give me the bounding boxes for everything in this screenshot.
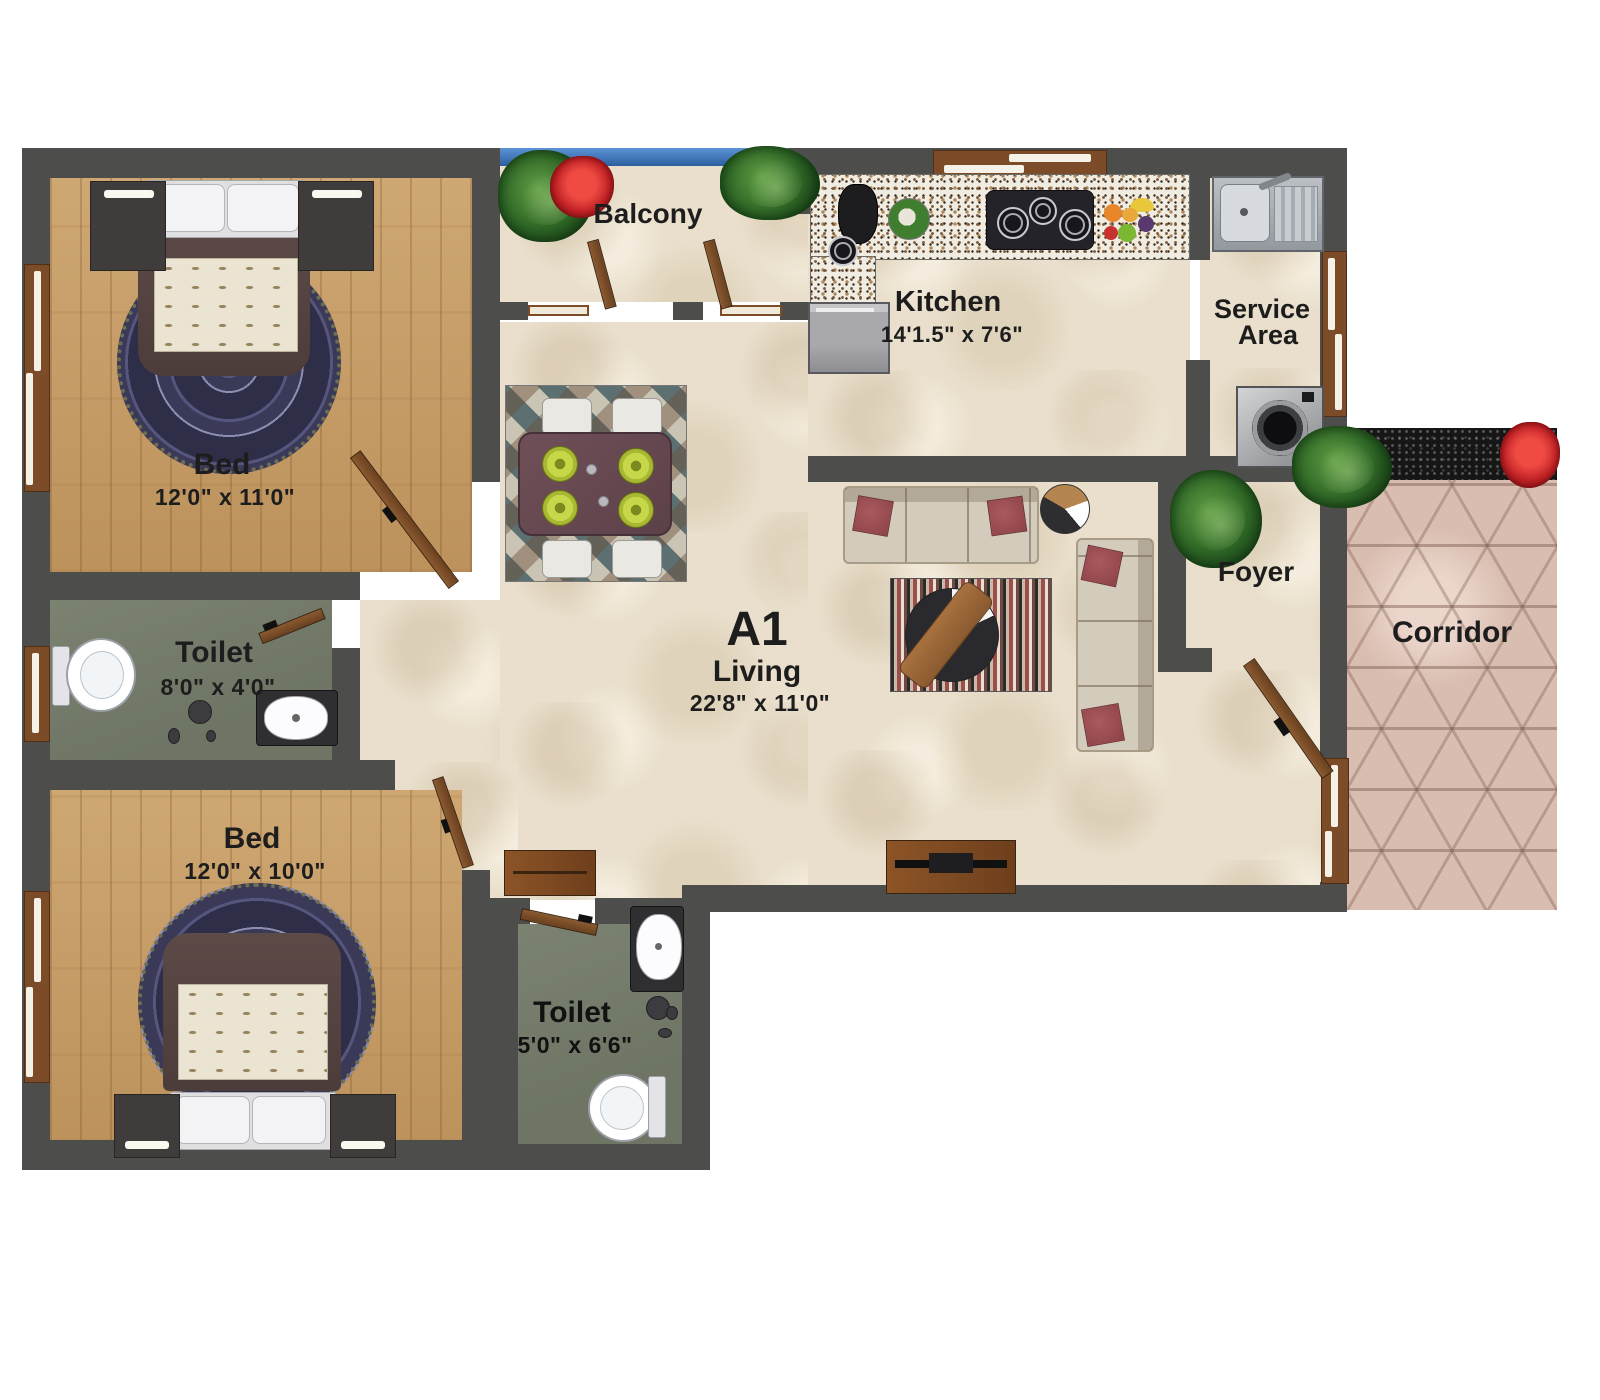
bedroom-bottom-label: Bed (224, 822, 281, 856)
service-area-label-line2: Area (1238, 320, 1298, 351)
bed-top-pillow-right (227, 184, 299, 232)
sofa-backrest (1138, 540, 1152, 750)
nightstand (298, 181, 374, 271)
throw-pillow (852, 495, 894, 537)
dining-chair (612, 398, 662, 436)
dining-table (518, 432, 672, 536)
wall-foyer-corridor (1320, 490, 1347, 760)
gas-stove (986, 190, 1094, 250)
window-pane (32, 653, 39, 733)
vegetable-plate (888, 198, 930, 240)
bed-bottom-pillow-right (252, 1096, 326, 1144)
wall-foyer-foot (1158, 648, 1212, 672)
window-pane (26, 987, 33, 1077)
wall-bed1-bottom (22, 572, 360, 600)
balcony-door-sill-left (528, 305, 589, 316)
stove-burner (1059, 209, 1091, 241)
bedroom-bottom-dims: 12'0" x 10'0" (184, 858, 326, 885)
bedroom-top-dims: 12'0" x 11'0" (155, 484, 295, 511)
fruit-apple-green (1118, 224, 1136, 242)
bed-bottom-pillow-left (176, 1096, 250, 1144)
window-pane (34, 271, 41, 371)
foyer-label: Foyer (1218, 556, 1294, 588)
living-label: Living (713, 655, 801, 689)
wall-balcony-stub-left (498, 302, 528, 320)
window-pane (944, 165, 1024, 173)
wall-bed2-right (462, 870, 490, 1170)
bath-accessory (666, 1006, 678, 1020)
plate (618, 492, 654, 528)
washer-panel (1302, 392, 1314, 402)
toilet-bottom-tank (648, 1076, 666, 1138)
plant-corridor (1292, 426, 1392, 508)
dining-chair (542, 540, 592, 578)
nightstand (330, 1094, 396, 1158)
fruit-orange (1104, 204, 1122, 222)
lamp (125, 1141, 169, 1149)
toilet-top-basin (264, 696, 328, 740)
balcony-label: Balcony (594, 198, 703, 230)
fruit-grapes (1138, 216, 1154, 232)
wall-bed1-top (22, 148, 500, 178)
plant-foyer (1170, 470, 1262, 568)
window-pane (26, 373, 33, 485)
floor-plan: Balcony Kitchen 14'1.5" x 7'6" Service A… (0, 0, 1600, 1400)
dining-chair (542, 398, 592, 436)
wall-toilet2-right (682, 898, 710, 1170)
cabinet-line (513, 871, 587, 874)
sofa-horizontal (843, 486, 1039, 564)
bedroom-top-label: Bed (194, 448, 251, 482)
toilet-seat (80, 651, 124, 699)
refrigerator (808, 302, 890, 374)
nightstand (114, 1094, 180, 1158)
tv-stand (929, 853, 973, 873)
living-dims: 22'8" x 11'0" (690, 690, 830, 717)
fruit-mango (1122, 208, 1138, 222)
throw-pillow (987, 496, 1028, 537)
lamp (312, 190, 362, 198)
kitchen-dims: 14'1.5" x 7'6" (881, 322, 1023, 348)
plant-balcony-right (720, 146, 820, 220)
service-sink-unit (1212, 176, 1324, 252)
toilet-top-dims: 8'0" x 4'0" (161, 674, 276, 701)
sink-drainboard (1274, 186, 1318, 242)
wall-toilet2-bottom (490, 1144, 710, 1170)
window-pane (1335, 334, 1342, 410)
unit-label: A1 (726, 602, 787, 657)
lamp (104, 190, 154, 198)
bath-accessory (658, 1028, 672, 1038)
stove-burner (1029, 197, 1057, 225)
cup (586, 464, 597, 475)
cup (598, 496, 609, 507)
sofa-vertical (1076, 538, 1154, 752)
bed-bottom-blanket (178, 984, 328, 1080)
window-pane (1009, 154, 1091, 162)
door-glass (1331, 765, 1338, 827)
window-service-right (1322, 251, 1347, 417)
fruit-apple-red (1104, 226, 1118, 240)
wall-bed1-right (472, 148, 500, 482)
corridor-floor (1347, 478, 1557, 910)
toilet-bottom-basin (636, 914, 682, 980)
nightstand (90, 181, 166, 271)
bath-accessory (188, 700, 212, 724)
kitchen-label: Kitchen (895, 286, 1001, 319)
dining-chair (612, 540, 662, 578)
window-pane (34, 898, 41, 982)
bath-accessory (206, 730, 216, 742)
wall-balcony-stub-mid (673, 302, 703, 320)
wall-toilet1-bed2 (22, 760, 395, 790)
toilet-top-bowl (66, 638, 136, 712)
basin-drain (292, 714, 300, 722)
sink-drain (1240, 208, 1248, 216)
window-toilet1-left (24, 646, 50, 742)
bath-accessory (168, 728, 180, 744)
plate (542, 446, 578, 482)
wall-toilet2-left (490, 898, 518, 1170)
stove-burner (997, 207, 1029, 239)
window-pane (1328, 258, 1335, 330)
fruit-bowl (1102, 192, 1158, 248)
throw-pillow (1081, 703, 1125, 747)
passage-floor (360, 600, 500, 762)
window-bed2-left (24, 891, 50, 1083)
basin-drain (655, 943, 662, 950)
corridor-label: Corridor (1392, 616, 1512, 650)
plate (618, 448, 654, 484)
throw-pillow (1081, 545, 1124, 588)
coffee-maker (838, 184, 878, 244)
lamp (341, 1141, 385, 1149)
shoe-cabinet (504, 850, 596, 896)
toilet-bottom-label: Toilet (533, 996, 611, 1030)
window-bed1-left (24, 264, 50, 492)
single-hob (828, 236, 858, 266)
tv-console (886, 840, 1016, 894)
toilet-bottom-dims: 5'0" x 6'6" (518, 1032, 633, 1059)
door-glass (1325, 831, 1332, 877)
fridge-highlight (816, 308, 874, 312)
door-handle (578, 914, 593, 924)
plate (542, 490, 578, 526)
bed-top-blanket (154, 258, 298, 352)
side-table (1040, 484, 1090, 534)
toilet-top-label: Toilet (175, 636, 253, 670)
toilet-seat (600, 1086, 644, 1130)
